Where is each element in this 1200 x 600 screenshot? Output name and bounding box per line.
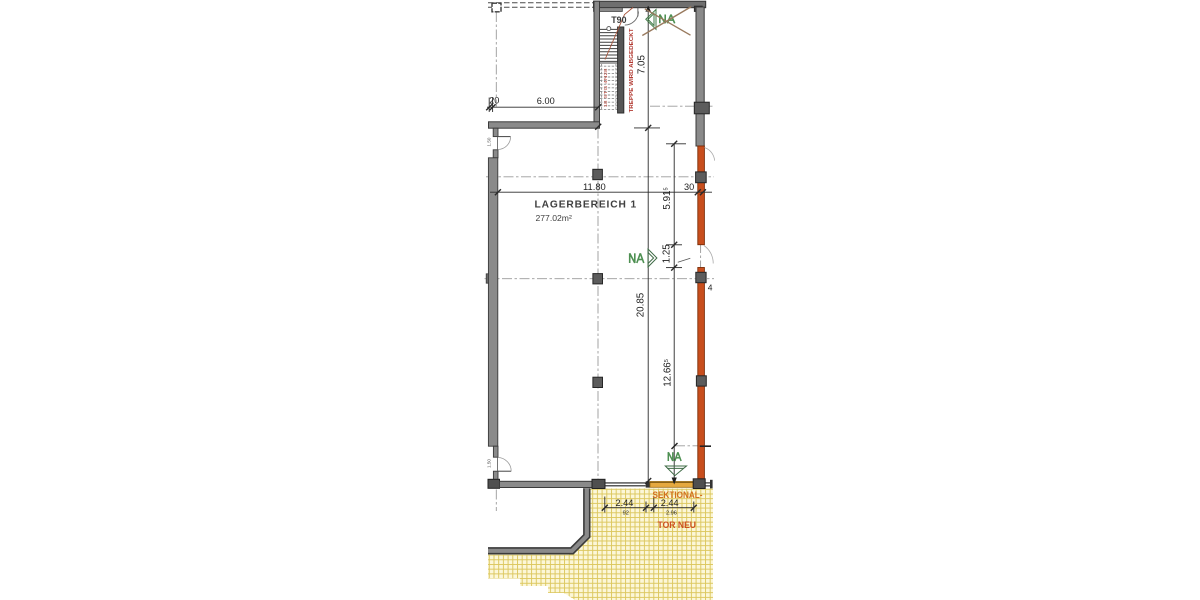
- svg-text:92: 92: [623, 511, 629, 517]
- svg-text:12.665: 12.665: [662, 359, 673, 387]
- svg-text:TOR NEU: TOR NEU: [658, 520, 697, 530]
- svg-text:4: 4: [708, 283, 713, 293]
- svg-text:2.96: 2.96: [666, 510, 677, 516]
- svg-text:5.915: 5.915: [662, 187, 673, 209]
- svg-text:20.85: 20.85: [636, 292, 647, 317]
- svg-text:11.80: 11.80: [583, 181, 606, 192]
- svg-text:LAGERBEREICH 1: LAGERBEREICH 1: [535, 200, 638, 211]
- svg-text:18 STG 4N28: 18 STG 4N28: [603, 68, 608, 108]
- svg-text:2.44: 2.44: [616, 498, 634, 508]
- svg-text:1.50: 1.50: [487, 137, 492, 146]
- svg-text:6.00: 6.00: [537, 96, 555, 106]
- svg-text:30: 30: [684, 182, 694, 192]
- svg-text:TREPPE WIRD ABGEDECKT: TREPPE WIRD ABGEDECKT: [629, 28, 635, 113]
- svg-text:277.02m²: 277.02m²: [536, 213, 572, 223]
- svg-text:SEKTIONAL-: SEKTIONAL-: [653, 490, 703, 500]
- svg-text:1.50: 1.50: [487, 459, 492, 468]
- svg-text:1.25: 1.25: [662, 244, 673, 264]
- svg-text:7.05: 7.05: [637, 55, 648, 75]
- svg-text:20: 20: [489, 96, 499, 106]
- svg-text:T90: T90: [611, 15, 626, 25]
